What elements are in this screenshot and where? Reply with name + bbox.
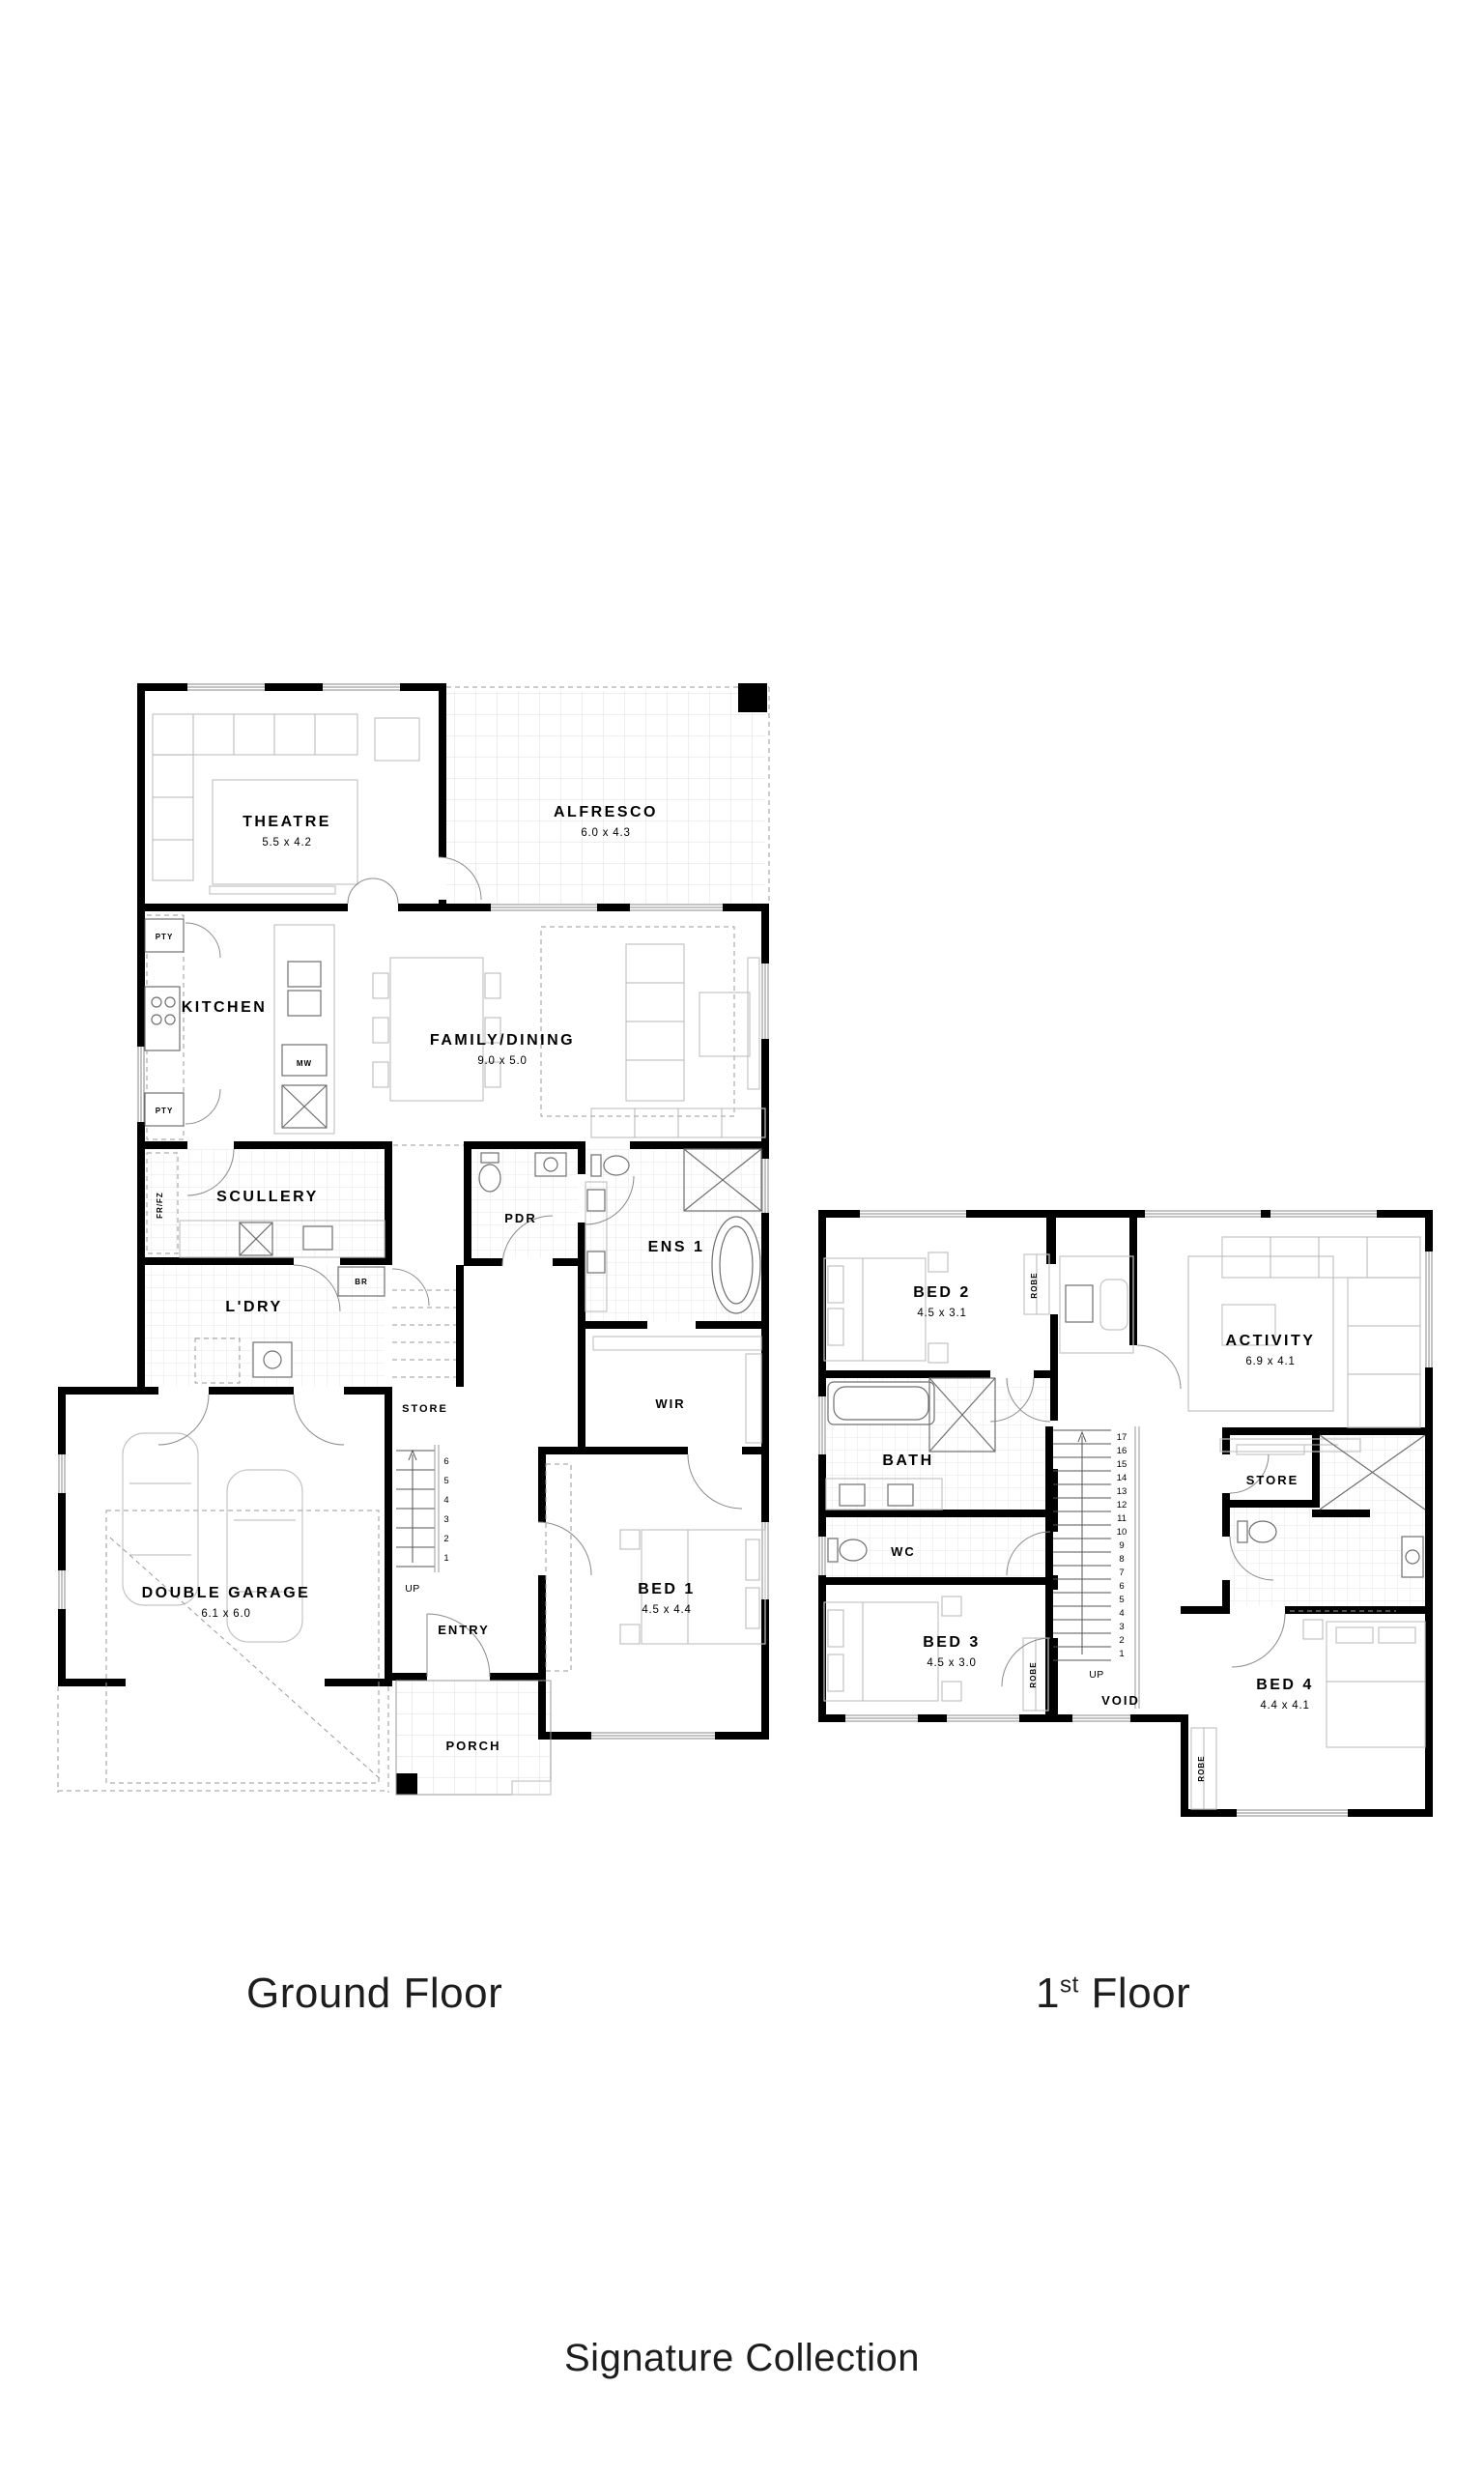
floorplan-page: THEATRE 5.5 x 4.2 ALFRESCO 6.0 x 4.3 KIT… [0,0,1484,2474]
stair-number: 10 [1117,1527,1127,1538]
collection-caption-text: Signature Collection [564,2337,920,2379]
stair-number: 13 [1117,1486,1127,1497]
stair-number: 2 [1119,1635,1124,1646]
stair-number: 4 [443,1495,448,1506]
stair-number: 6 [1119,1581,1124,1592]
scullery-label: SCULLERY [216,1189,319,1205]
stair-number: 3 [443,1514,448,1525]
stair-number: 11 [1117,1513,1127,1524]
ground-up-label: UP [405,1583,420,1595]
family-label: FAMILY/DINING [430,1032,575,1049]
collection-caption: Signature Collection [0,2337,1484,2380]
ground-stairs [392,1290,456,1572]
store-label: STORE [402,1403,448,1415]
bed3-dims: 4.5 x 3.0 [927,1657,976,1669]
pty-bottom-label: PTY [156,1107,174,1115]
stair-number: 15 [1117,1459,1127,1470]
stair-number: 1 [443,1553,448,1564]
frfz-label: FR/FZ [156,1192,164,1219]
alfresco-label: ALFRESCO [554,804,658,820]
robe-bed4-label: ROBE [1197,1755,1206,1781]
stair-number: 5 [1119,1595,1124,1605]
bed3-label: BED 3 [923,1634,981,1651]
mw-label: MW [297,1059,312,1068]
bed4-label: BED 4 [1256,1677,1314,1693]
family-dims: 9.0 x 5.0 [477,1055,527,1067]
bed1-label: BED 1 [638,1581,696,1597]
wc-label: WC [891,1544,916,1559]
stair-number: 6 [443,1456,448,1467]
pty-top-label: PTY [156,933,174,941]
garage-dims: 6.1 x 6.0 [201,1608,250,1620]
desk-nook [1060,1256,1133,1353]
stair-number: 3 [1119,1622,1124,1632]
bed4-furniture [1191,1620,1425,1809]
ground-floor-caption-text: Ground Floor [246,1970,502,2017]
bath-label: BATH [882,1453,933,1469]
stair-number: 17 [1117,1432,1127,1443]
stair-number: 14 [1117,1473,1127,1483]
stair-number: 5 [443,1476,448,1486]
bed2-dims: 4.5 x 3.1 [917,1308,966,1319]
theatre-label: THEATRE [243,814,331,830]
porch-label: PORCH [446,1739,501,1753]
ens1-label: ENS 1 [648,1239,705,1255]
ldry-label: L'DRY [225,1299,282,1315]
stair-number: 1 [1119,1649,1124,1659]
ground-floor-caption: Ground Floor [246,1970,502,2018]
wir-label: WIR [655,1396,685,1411]
ground-floor-plan: THEATRE 5.5 x 4.2 ALFRESCO 6.0 x 4.3 KIT… [50,672,809,1817]
void-label: VOID [1101,1693,1140,1708]
bed2-label: BED 2 [913,1284,971,1301]
garage-label: DOUBLE GARAGE [142,1585,311,1601]
robe-bed3-label: ROBE [1029,1661,1038,1687]
first-floor-number: 1 [1036,1970,1060,2017]
stair-number: 2 [443,1534,448,1544]
stair-number: 7 [1119,1568,1124,1578]
first-floor-ordinal: st [1060,1971,1079,1998]
wir-shelving [593,1337,761,1443]
wc-fixtures [828,1539,867,1562]
br-label: BR [355,1278,368,1286]
first-up-label: UP [1089,1669,1104,1681]
robe-bed2-label: ROBE [1030,1272,1039,1298]
first-store-label: STORE [1246,1473,1299,1487]
first-floor-caption: 1st Floor [1036,1970,1190,2018]
kitchen-label: KITCHEN [182,999,268,1016]
stair-number: 4 [1119,1608,1124,1619]
first-floor-word: Floor [1092,1970,1191,2017]
stair-number: 8 [1119,1554,1124,1565]
bed1-dims: 4.5 x 4.4 [642,1604,691,1616]
stair-number: 9 [1119,1540,1124,1551]
entry-label: ENTRY [438,1623,490,1637]
activity-dims: 6.9 x 4.1 [1245,1356,1295,1367]
stair-number: 16 [1117,1446,1127,1456]
alfresco-dims: 6.0 x 4.3 [581,827,630,839]
theatre-dims: 5.5 x 4.2 [262,837,311,849]
bed4-dims: 4.4 x 4.1 [1260,1700,1309,1712]
first-floor-plan: BED 2 4.5 x 3.1 ACTIVITY 6.9 x 4.1 BATH … [807,1198,1444,1831]
activity-label: ACTIVITY [1226,1333,1316,1349]
theatre-furniture [153,714,419,894]
pdr-label: PDR [504,1211,536,1225]
stair-number: 12 [1117,1500,1127,1510]
bed1-furniture [546,1464,765,1671]
